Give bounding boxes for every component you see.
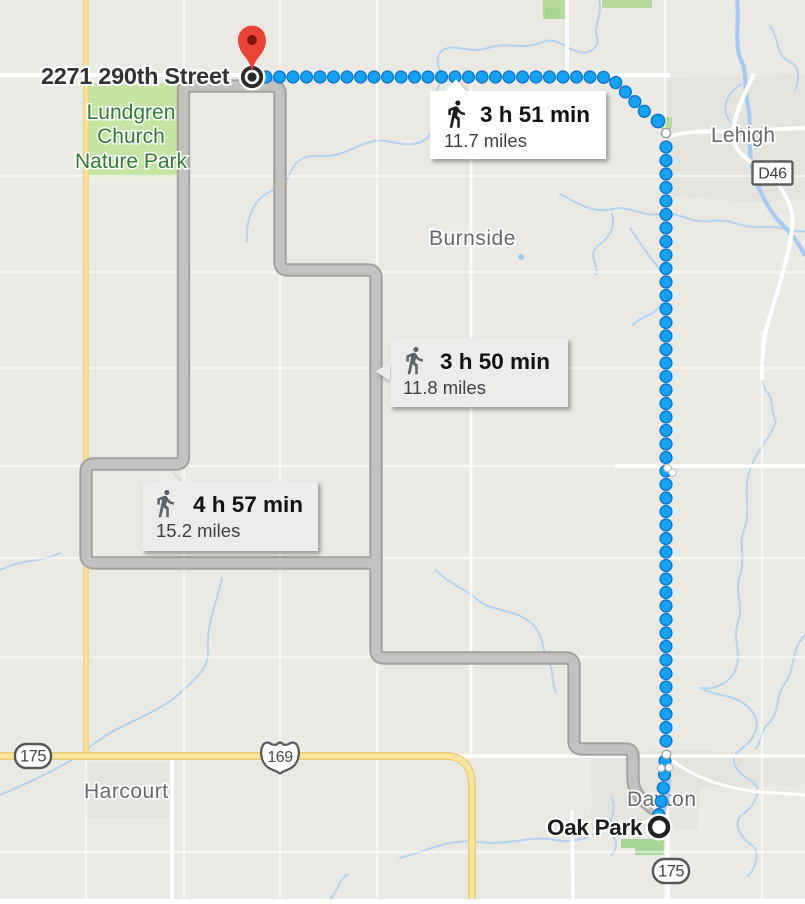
svg-text:Church: Church [97,125,165,148]
svg-text:Oak Park: Oak Park [547,815,643,840]
svg-text:2271 290th Street: 2271 290th Street [41,63,230,89]
svg-text:Lehigh: Lehigh [711,124,775,147]
svg-text:3 h 51 min: 3 h 51 min [480,102,590,127]
svg-text:175: 175 [658,863,684,881]
svg-text:Harcourt: Harcourt [84,780,169,803]
svg-text:11.7 miles: 11.7 miles [444,130,527,151]
svg-text:Lundgren: Lundgren [87,101,176,124]
svg-text:11.8 miles: 11.8 miles [403,377,486,398]
svg-text:Burnside: Burnside [429,227,516,250]
svg-text:4 h 57 min: 4 h 57 min [193,492,303,517]
svg-text:D46: D46 [758,166,787,183]
svg-text:Nature Park: Nature Park [75,150,188,173]
svg-text:169: 169 [267,749,293,766]
svg-text:15.2 miles: 15.2 miles [156,520,240,541]
svg-text:3 h 50 min: 3 h 50 min [440,349,550,374]
svg-text:175: 175 [20,748,46,766]
